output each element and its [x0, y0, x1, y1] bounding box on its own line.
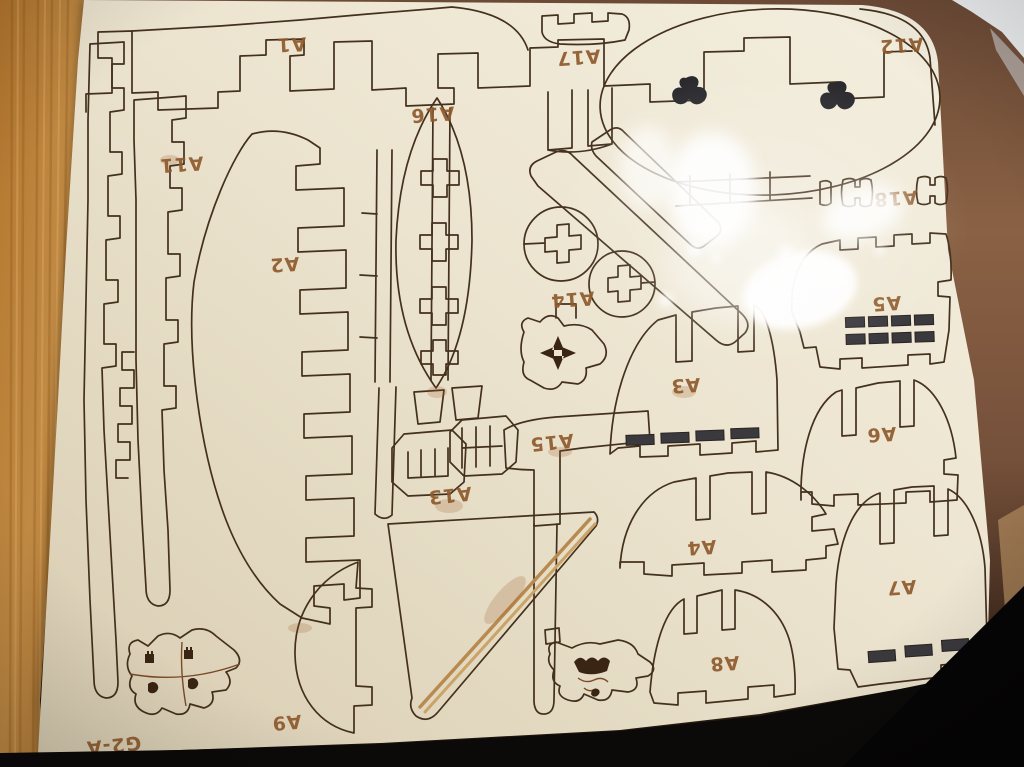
vignette: [0, 0, 1024, 767]
scene: A1 A17 A12 A16 A11 A18 A2 A14 A5 A3 A6 A…: [0, 0, 1024, 767]
photo-of-lasercut-sheet: A1 A17 A12 A16 A11 A18 A2 A14 A5 A3 A6 A…: [0, 0, 1024, 767]
